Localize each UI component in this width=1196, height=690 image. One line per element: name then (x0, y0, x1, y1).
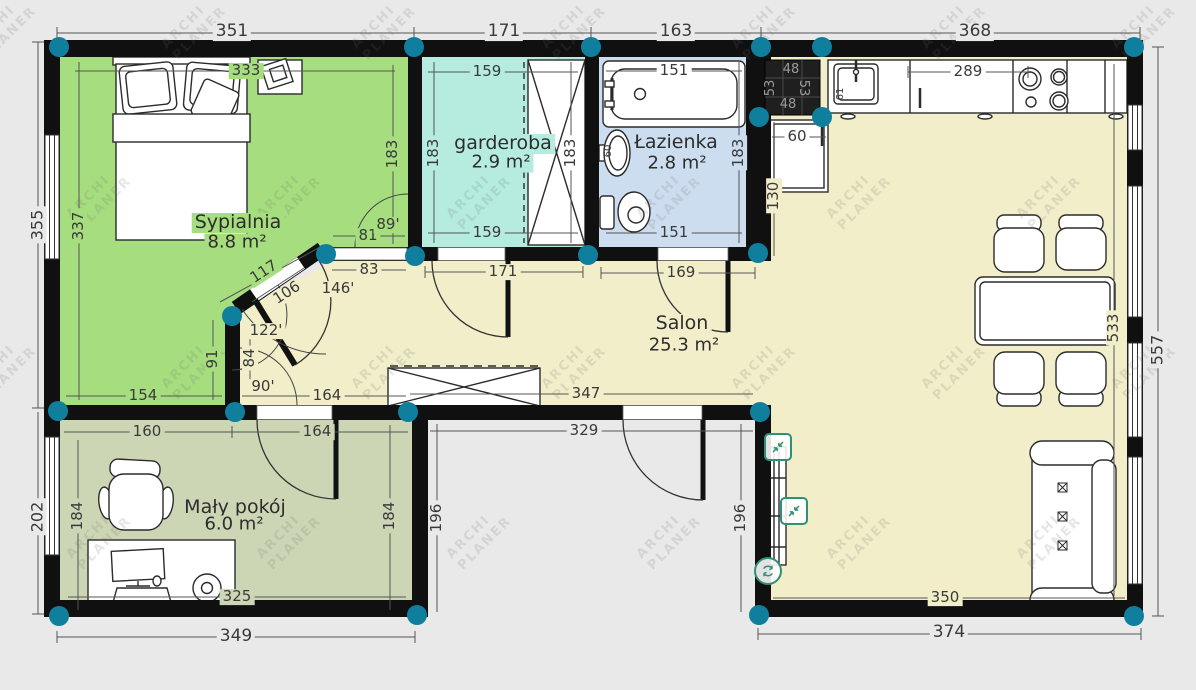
room-label: Sypialnia (192, 213, 285, 233)
dim-label: 53 (764, 77, 778, 100)
dining-chair[interactable] (994, 352, 1044, 406)
opening-small-room-door[interactable] (257, 406, 332, 420)
dim-label: 351 (213, 23, 251, 41)
corner-handle[interactable] (578, 245, 598, 265)
window[interactable] (1128, 186, 1142, 317)
dim-label: 202 (30, 499, 47, 536)
window[interactable] (1128, 457, 1142, 584)
nightstand[interactable] (258, 59, 302, 94)
dim-label: 53 (796, 77, 810, 100)
dim-label: 60 (604, 142, 615, 161)
dim-label: 183 (385, 137, 401, 172)
angle-label: 89' (373, 217, 402, 233)
corner-handle[interactable] (1124, 606, 1144, 626)
corner-handle[interactable] (812, 37, 832, 57)
room-label: Salon (653, 314, 712, 334)
dim-label: 160 (130, 424, 165, 440)
door[interactable] (623, 420, 703, 500)
window[interactable] (1128, 105, 1142, 150)
corner-handle[interactable] (404, 37, 424, 57)
dim-label: 48 (777, 98, 800, 112)
room-label: 2.9 m² (468, 154, 533, 173)
corner-handle[interactable] (405, 246, 425, 266)
dim-label: 333 (229, 63, 264, 79)
room-label: 6.0 m² (201, 516, 266, 535)
dim-label: 557 (1150, 332, 1167, 369)
dim-label: 184 (70, 499, 86, 534)
dim-label: 350 (928, 590, 963, 606)
wall-wardrobe-bath-divider[interactable] (585, 57, 599, 247)
shrink-arrows-icon[interactable] (764, 433, 792, 461)
corner-handle[interactable] (748, 243, 768, 263)
dim-label: 151 (657, 63, 692, 79)
sideboard[interactable] (388, 366, 540, 406)
dim-label: 48 (780, 63, 803, 77)
dim-label: 289 (951, 64, 986, 80)
angle-label: 146' (319, 281, 358, 297)
room-label: Łazienka (631, 133, 721, 153)
corner-handle[interactable] (316, 244, 336, 264)
dim-label: 329 (567, 423, 602, 439)
dim-label: 159 (470, 225, 505, 241)
rotate-icon[interactable] (754, 557, 782, 585)
dining-chair[interactable] (1056, 352, 1106, 406)
corner-handle[interactable] (222, 306, 242, 326)
dim-label: 374 (930, 624, 968, 642)
dim-label: 171 (485, 23, 523, 41)
room-label: 8.8 m² (204, 234, 269, 253)
dim-label: 355 (30, 207, 47, 244)
dim-label: 349 (217, 628, 255, 646)
wall-small-room-right[interactable] (412, 412, 428, 617)
opening-wardrobe-door[interactable] (438, 248, 505, 261)
dim-label: 184 (382, 499, 398, 534)
opening-bathroom-door[interactable] (658, 248, 728, 261)
floor-plan-canvas: 3511711633683493743552025573373331839115… (0, 0, 1196, 690)
dim-label: 164 (300, 424, 335, 440)
dim-label: 183 (563, 136, 579, 171)
dim-label: 196 (429, 501, 445, 536)
toilet[interactable] (600, 192, 650, 232)
wall-bedroom-east[interactable] (225, 312, 240, 407)
corner-handle[interactable] (49, 37, 69, 57)
window[interactable] (45, 437, 59, 555)
dim-label: 154 (126, 388, 161, 404)
dim-label: 151 (657, 225, 692, 241)
dim-label: 183 (731, 136, 747, 171)
corner-handle[interactable] (225, 402, 245, 422)
dim-label: 325 (220, 589, 255, 605)
dim-label: 61 (836, 85, 847, 104)
window[interactable] (45, 135, 59, 259)
dim-label: 130 (766, 179, 782, 214)
dim-label: 347 (569, 386, 604, 402)
corner-handle[interactable] (407, 605, 427, 625)
corner-handle[interactable] (812, 107, 832, 127)
corner-handle[interactable] (749, 107, 769, 127)
opening-terrace-door[interactable] (623, 406, 702, 420)
angle-label: 90' (248, 379, 277, 395)
dim-label: 164 (310, 388, 345, 404)
corner-handle[interactable] (1124, 37, 1144, 57)
angle-label: 122' (247, 323, 286, 339)
dim-label: 171 (486, 264, 521, 280)
wall-wardrobe-left[interactable] (408, 57, 422, 261)
corner-handle[interactable] (48, 401, 68, 421)
dim-label: 196 (733, 501, 749, 536)
dim-label: 91 (205, 346, 221, 371)
window[interactable] (1128, 343, 1142, 437)
dining-table[interactable] (975, 277, 1115, 345)
dim-label: 83 (356, 262, 381, 278)
room-label: 2.8 m² (644, 155, 709, 174)
opening-bedroom[interactable] (331, 248, 407, 260)
dim-label: 60 (784, 129, 809, 145)
floor-plan-drawing (0, 0, 1196, 690)
dim-label: 337 (71, 209, 87, 244)
dim-label: 163 (657, 23, 695, 41)
corner-handle[interactable] (49, 606, 69, 626)
sofa[interactable] (1030, 441, 1116, 612)
corner-handle[interactable] (581, 37, 601, 57)
dim-label: 183 (426, 136, 442, 171)
room-label: 25.3 m² (646, 337, 723, 356)
corner-handle[interactable] (750, 402, 770, 422)
dim-label: 84 (242, 345, 258, 370)
corner-handle[interactable] (749, 605, 769, 625)
dim-label: 368 (956, 23, 994, 41)
dim-label: 159 (470, 64, 505, 80)
corner-handle[interactable] (398, 402, 418, 422)
shrink-arrows-icon[interactable] (780, 497, 808, 525)
dining-chair[interactable] (1056, 215, 1106, 270)
dim-label: 169 (664, 265, 699, 281)
corner-handle[interactable] (751, 37, 771, 57)
dim-label: 533 (1106, 311, 1122, 346)
dining-chair[interactable] (994, 215, 1044, 272)
